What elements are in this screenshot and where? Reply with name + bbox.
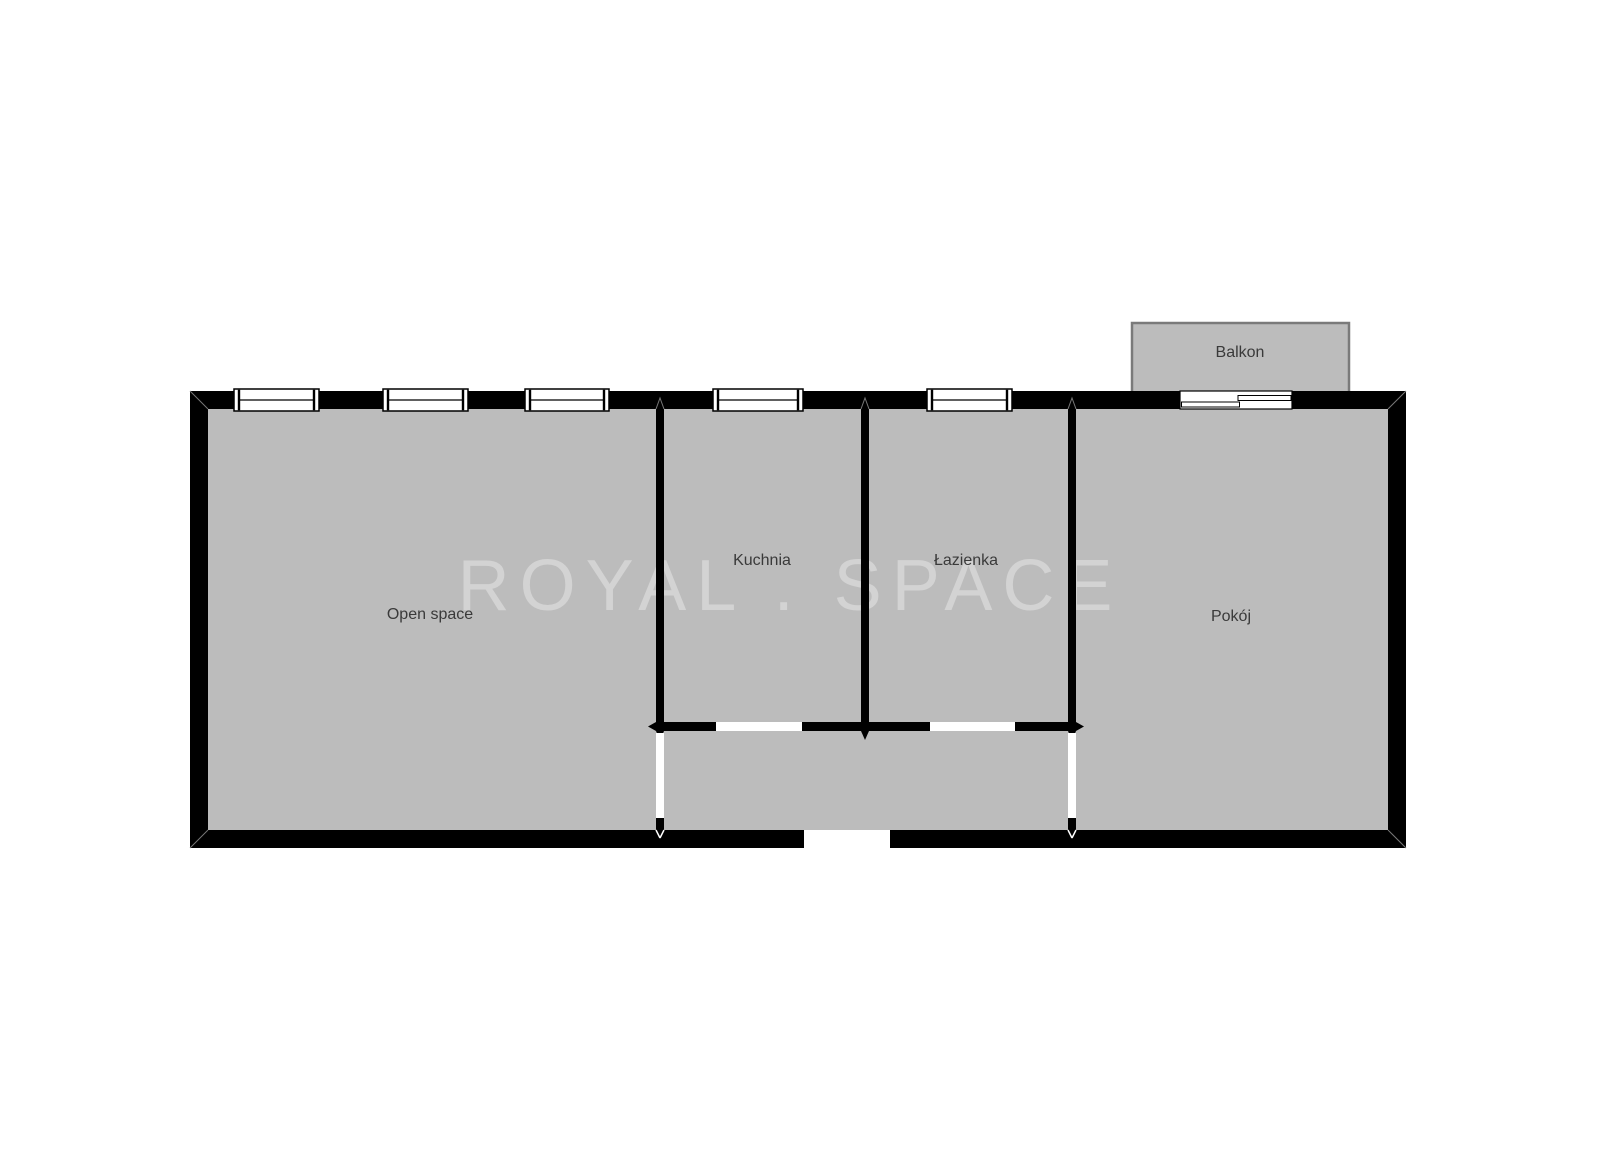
entrance-opening	[804, 830, 890, 848]
hall-wall-segment-left	[656, 722, 716, 731]
window-icon	[383, 389, 468, 411]
sliding-door-icon	[1180, 391, 1292, 409]
floor-plan-svg: ROYAL . SPACE	[0, 0, 1600, 1171]
room-label-lazienka: Łazienka	[934, 552, 998, 569]
room-label-kuchnia: Kuchnia	[733, 552, 791, 569]
window-icon	[713, 389, 803, 411]
room-label-balkon: Balkon	[1216, 344, 1265, 361]
hall-wall-segment-right	[1015, 722, 1076, 731]
door-opening-pokoj-hall	[1068, 733, 1076, 818]
window-icon	[525, 389, 609, 411]
door-opening-lazienka	[930, 722, 1015, 731]
hall-wall-segment-middle	[802, 722, 930, 731]
room-label-open-space: Open space	[387, 606, 473, 623]
wall-kuchnia-lazienka	[861, 409, 869, 731]
window-icon	[234, 389, 319, 411]
wall-lazienka-pokoj	[1068, 409, 1076, 731]
door-opening-kuchnia	[716, 722, 802, 731]
wall-stub-right	[1068, 818, 1076, 830]
balcony-door-panel-left	[1182, 402, 1240, 407]
room-label-pokoj: Pokój	[1211, 608, 1251, 625]
balcony-door-panel-right	[1238, 396, 1291, 401]
wall-stub-left	[656, 818, 664, 830]
wall-openspace-kuchnia	[656, 409, 664, 731]
floor-plan-page: ROYAL . SPACE	[0, 0, 1600, 1171]
door-opening-openspace-hall	[656, 733, 664, 818]
window-icon	[927, 389, 1012, 411]
